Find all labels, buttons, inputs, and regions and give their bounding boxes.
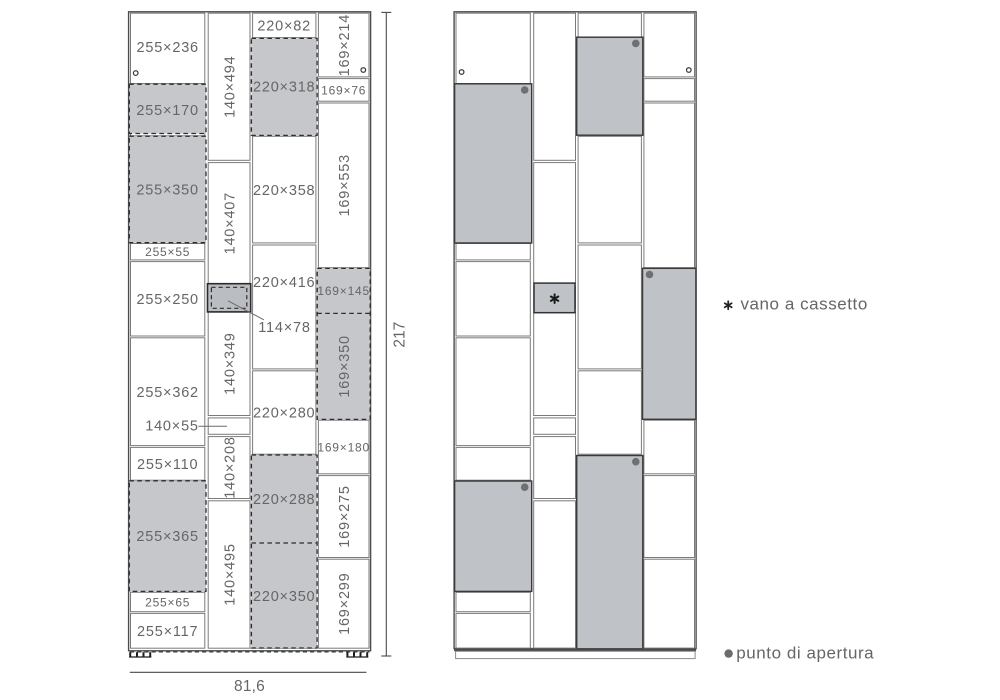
svg-text:140×208: 140×208 bbox=[222, 436, 238, 498]
svg-text:220×350: 220×350 bbox=[253, 589, 315, 605]
svg-text:255×236: 255×236 bbox=[136, 40, 198, 56]
svg-text:169×76: 169×76 bbox=[321, 83, 366, 97]
svg-text:vano a cassetto: vano a cassetto bbox=[741, 295, 868, 314]
svg-text:255×350: 255×350 bbox=[136, 182, 198, 198]
svg-text:220×288: 220×288 bbox=[253, 492, 315, 508]
svg-text:140×55: 140×55 bbox=[145, 418, 199, 434]
svg-text:169×145: 169×145 bbox=[317, 284, 370, 298]
svg-text:220×416: 220×416 bbox=[253, 275, 315, 291]
svg-text:140×495: 140×495 bbox=[222, 543, 238, 605]
svg-text:114×78: 114×78 bbox=[258, 320, 311, 336]
svg-text:255×362: 255×362 bbox=[136, 385, 198, 401]
svg-text:255×65: 255×65 bbox=[145, 595, 190, 609]
svg-text:140×494: 140×494 bbox=[222, 55, 238, 117]
svg-text:140×407: 140×407 bbox=[222, 192, 238, 254]
svg-text:169×299: 169×299 bbox=[337, 572, 353, 634]
svg-text:255×250: 255×250 bbox=[136, 292, 198, 308]
svg-text:220×358: 220×358 bbox=[253, 183, 315, 199]
svg-text:169×275: 169×275 bbox=[337, 485, 353, 547]
svg-text:punto di apertura: punto di apertura bbox=[736, 644, 874, 663]
svg-text:81,6: 81,6 bbox=[234, 678, 265, 695]
svg-text:255×117: 255×117 bbox=[137, 624, 198, 640]
svg-text:255×55: 255×55 bbox=[145, 245, 190, 259]
svg-text:169×180: 169×180 bbox=[317, 440, 370, 454]
svg-text:255×170: 255×170 bbox=[136, 103, 198, 119]
svg-text:140×349: 140×349 bbox=[222, 332, 238, 394]
svg-text:220×280: 220×280 bbox=[253, 406, 315, 422]
svg-text:220×82: 220×82 bbox=[257, 19, 311, 35]
svg-text:255×110: 255×110 bbox=[137, 457, 198, 473]
svg-text:255×365: 255×365 bbox=[136, 529, 198, 545]
svg-text:169×214: 169×214 bbox=[337, 14, 353, 76]
svg-text:169×350: 169×350 bbox=[337, 335, 353, 397]
svg-text:169×553: 169×553 bbox=[337, 154, 353, 216]
svg-text:220×318: 220×318 bbox=[253, 80, 315, 96]
svg-text:217: 217 bbox=[392, 322, 409, 348]
